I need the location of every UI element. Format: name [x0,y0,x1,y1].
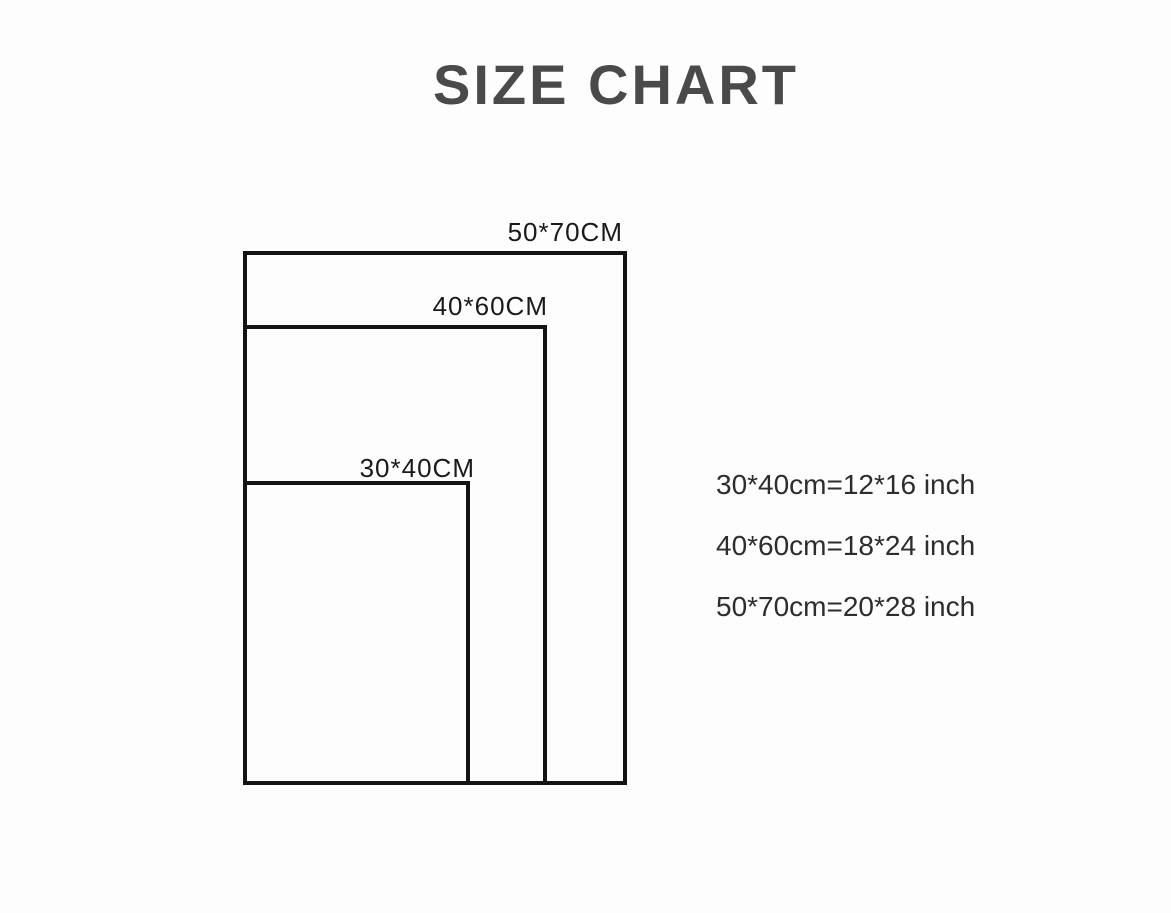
conversion-line-50x70: 50*70cm=20*28 inch [716,576,975,637]
page-title: SIZE CHART [433,52,799,117]
size-rectangle-30x40 [243,481,470,785]
size-label-40x60: 40*60CM [433,291,548,322]
conversion-line-30x40: 30*40cm=12*16 inch [716,454,975,515]
conversion-list: 30*40cm=12*16 inch 40*60cm=18*24 inch 50… [716,454,975,637]
size-label-50x70: 50*70CM [508,217,623,248]
conversion-line-40x60: 40*60cm=18*24 inch [716,515,975,576]
size-label-30x40: 30*40CM [360,453,475,484]
size-chart-page: SIZE CHART 50*70CM 40*60CM 30*40CM 30*40… [0,0,1171,913]
